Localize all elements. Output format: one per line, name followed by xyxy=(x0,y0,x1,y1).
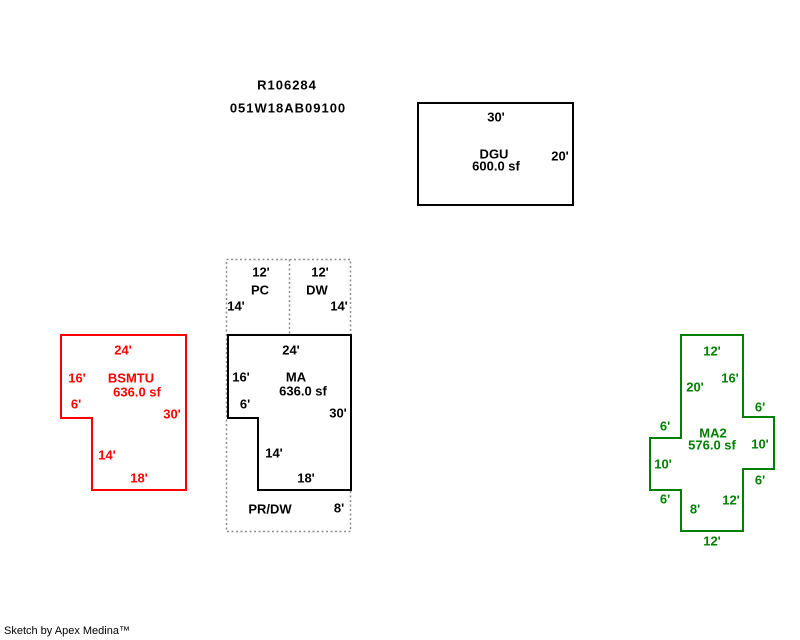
ma2-dim-stem-right: 12' xyxy=(722,494,740,507)
bsmtu-area-name: BSMTU xyxy=(108,372,154,385)
ma-dim-inner: 14' xyxy=(265,447,283,460)
ma2-area-sqft: 576.0 sf xyxy=(688,439,736,452)
dw-dim-top: 12' xyxy=(311,266,329,279)
pc-dim-top: 12' xyxy=(252,266,270,279)
bsmtu-dim-step: 6' xyxy=(71,398,81,411)
dw-area-name: DW xyxy=(306,284,328,297)
parcel-id: 051W18AB09100 xyxy=(230,102,346,115)
bsmtu-dim-left: 16' xyxy=(68,372,86,385)
ma-dim-left: 16' xyxy=(232,371,250,384)
ma-area-name: MA xyxy=(286,371,306,384)
ma2-dim-top: 12' xyxy=(703,345,721,358)
bsmtu-dim-bottom: 18' xyxy=(130,472,148,485)
ma-dim-right: 30' xyxy=(329,407,347,420)
sketch-credit: Sketch by Apex Medina™ xyxy=(4,625,130,637)
ma2-dim-left-arm-top: 6' xyxy=(660,420,670,433)
ma-area-sqft: 636.0 sf xyxy=(279,385,327,398)
ma2-dim-right-arm-bottom: 6' xyxy=(755,474,765,487)
parcel-record-number: R106284 xyxy=(257,79,317,92)
bsmtu-dim-inner: 14' xyxy=(98,449,116,462)
ma-dim-step: 6' xyxy=(240,398,250,411)
ma-dim-top: 24' xyxy=(282,344,300,357)
sketch-shapes-layer xyxy=(0,0,800,640)
dgu-dim-top: 30' xyxy=(487,111,505,124)
ma2-dim-upper-left: 20' xyxy=(686,381,704,394)
ma2-dim-stem-left: 8' xyxy=(690,503,700,516)
bsmtu-dim-top: 24' xyxy=(114,344,132,357)
dgu-area-sqft: 600.0 sf xyxy=(472,160,520,173)
ma2-dim-left-arm-side: 10' xyxy=(654,458,672,471)
property-sketch-canvas: R106284 051W18AB09100 30' DGU 600.0 sf 2… xyxy=(0,0,800,640)
pc-dim-left: 14' xyxy=(227,300,245,313)
ma2-dim-upper-right: 16' xyxy=(721,372,739,385)
bsmtu-area-sqft: 636.0 sf xyxy=(113,386,161,399)
pc-area-name: PC xyxy=(251,284,269,297)
bsmtu-dim-right: 30' xyxy=(163,408,181,421)
ma-dim-bottom: 18' xyxy=(297,472,315,485)
dgu-dim-right: 20' xyxy=(551,150,569,163)
ma2-dim-right-arm-top: 6' xyxy=(755,401,765,414)
prdw-area-name: PR/DW xyxy=(248,503,291,516)
ma2-dim-left-arm-bottom: 6' xyxy=(660,493,670,506)
dw-dim-right: 14' xyxy=(330,300,348,313)
ma2-dim-right-arm-side: 10' xyxy=(751,438,769,451)
ma2-dim-bottom: 12' xyxy=(703,535,721,548)
prdw-dim-right: 8' xyxy=(334,502,344,515)
